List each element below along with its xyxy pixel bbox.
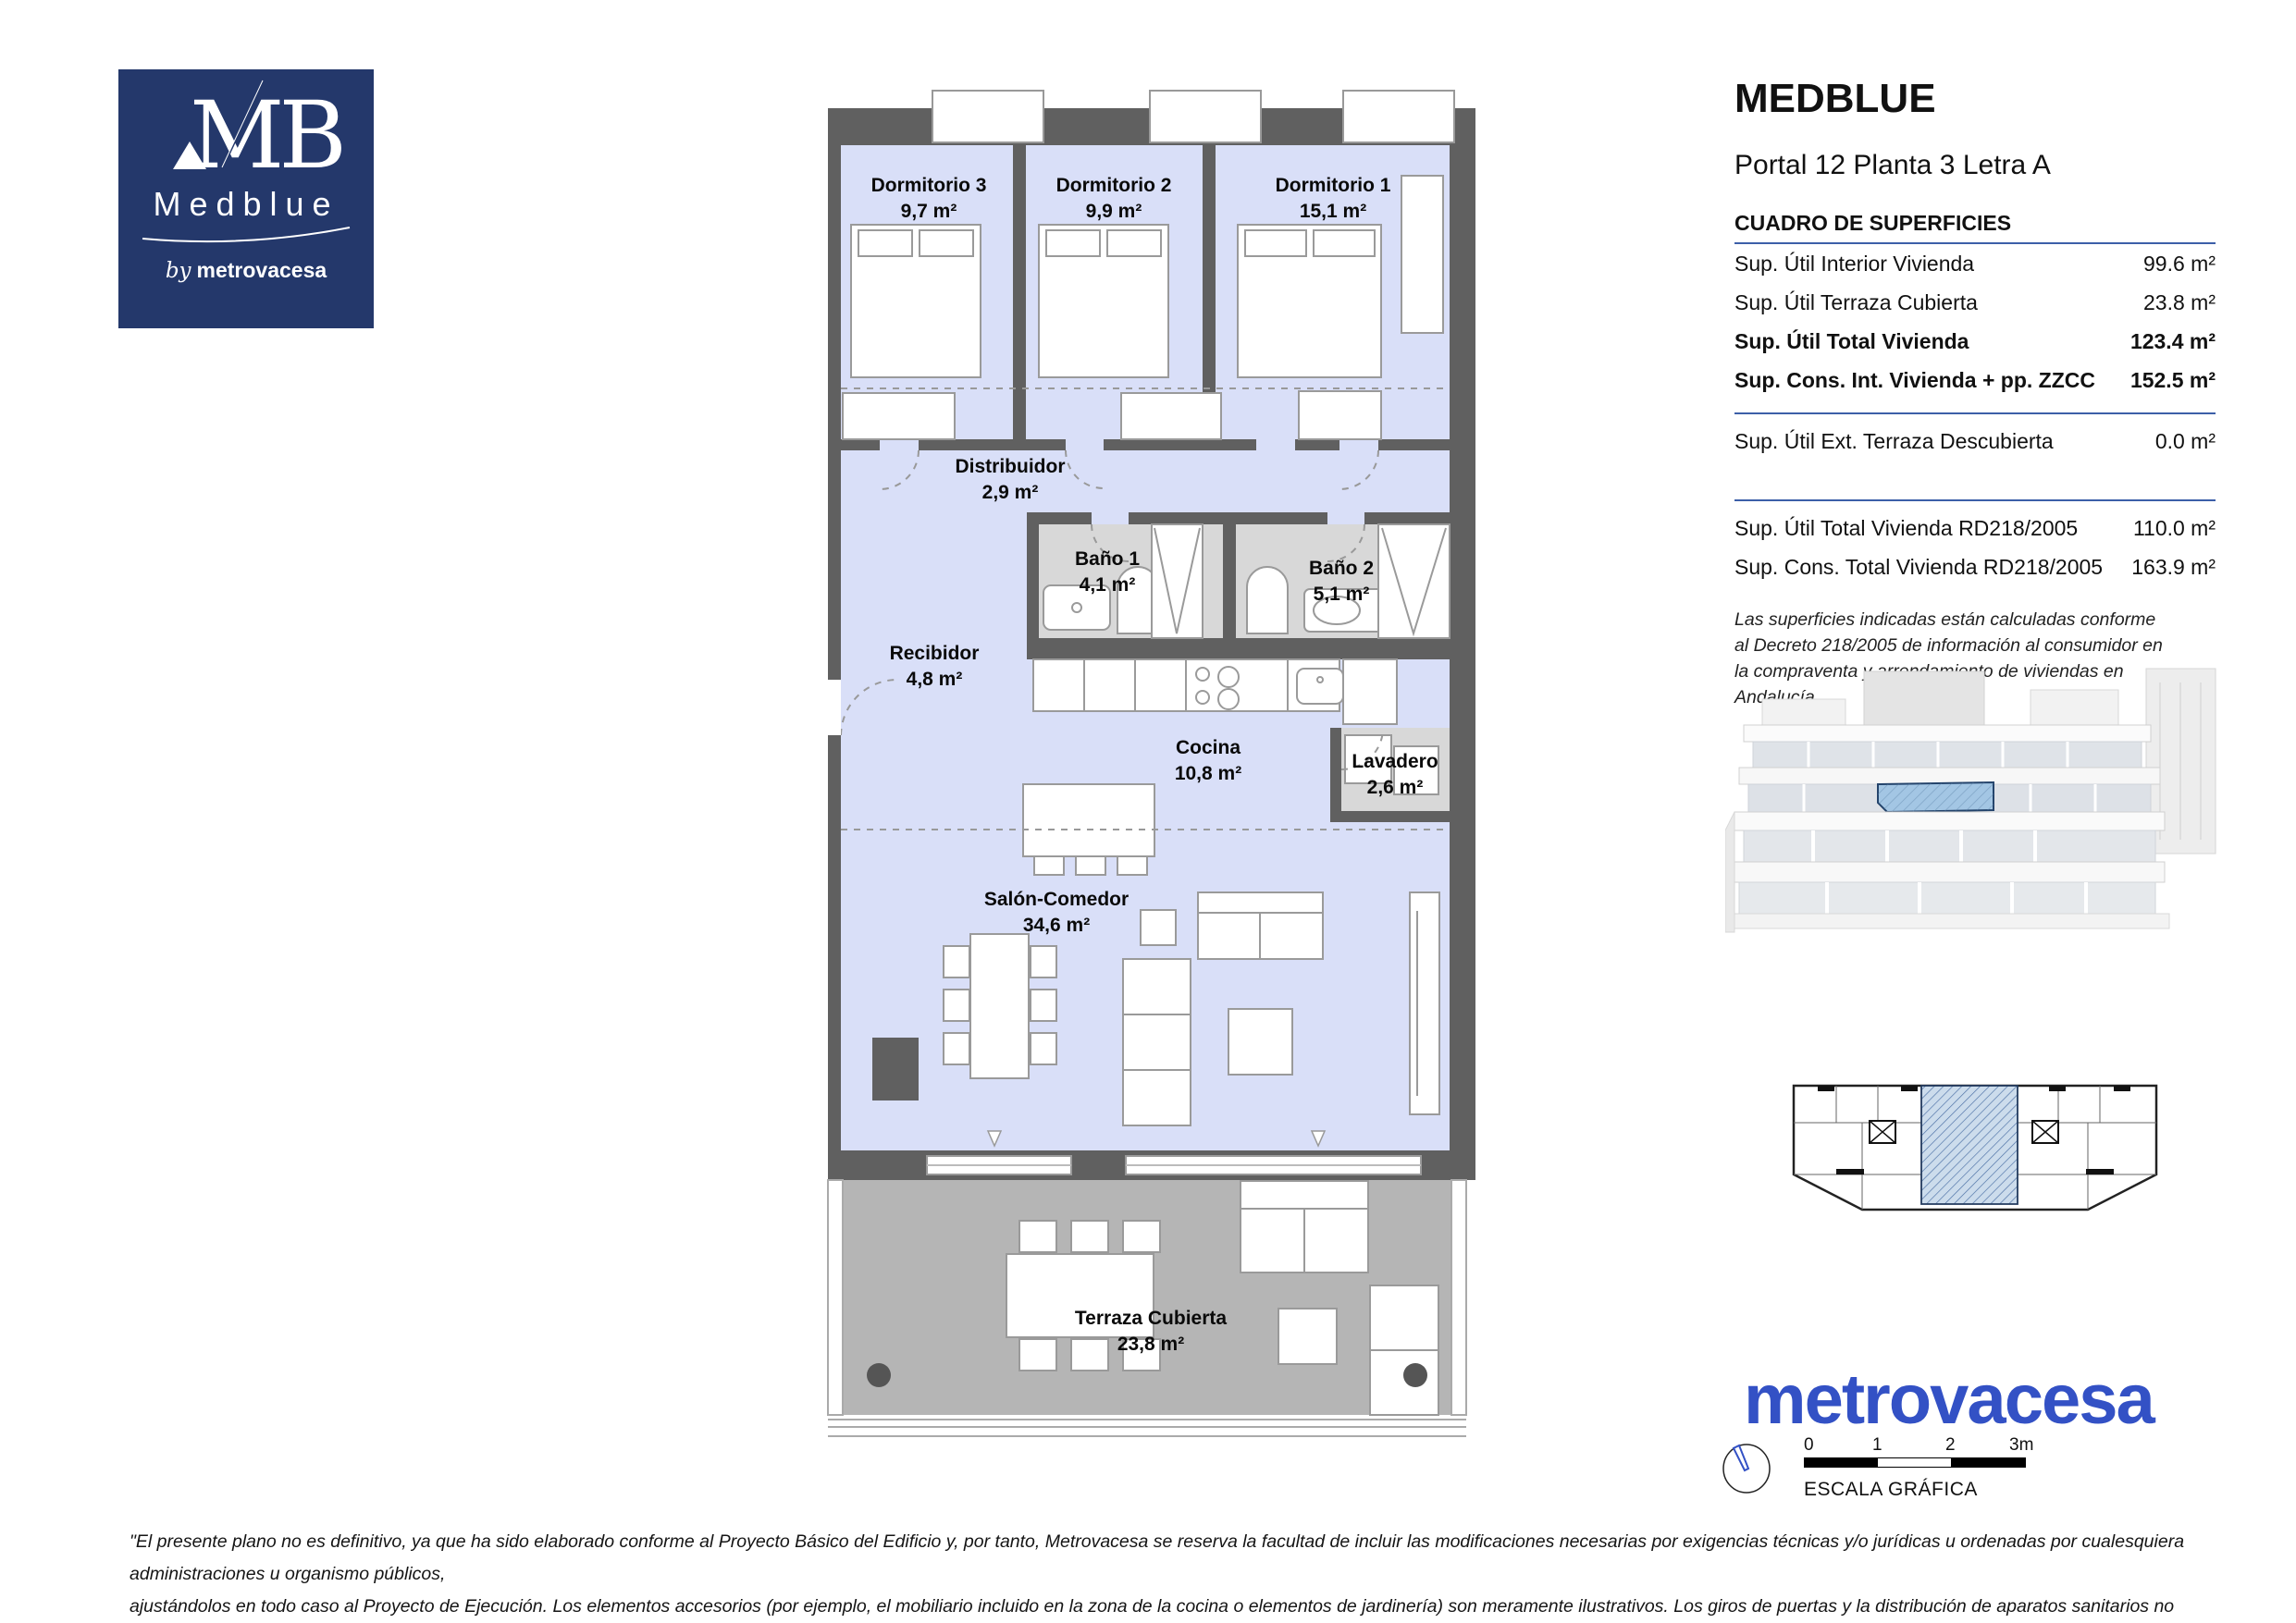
scale-graphic: 0 1 2 3m ESCALA GRÁFICA: [1804, 1435, 2035, 1501]
room-area: 4,1 m²: [1080, 574, 1136, 596]
scale-tick: 3m: [2009, 1435, 2033, 1456]
room-area: 23,8 m²: [1117, 1334, 1184, 1355]
sheet-title: MEDBLUE: [1734, 76, 1936, 122]
row-label: Sup. Útil Terraza Cubierta: [1734, 290, 1978, 315]
row-value: 152.5 m²: [2130, 368, 2216, 393]
divider: [1734, 499, 2216, 501]
table-row: Sup. Cons. Int. Vivienda + pp. ZZCC 152.…: [1734, 368, 2216, 407]
disclaimer-line: "El presente plano no es definitivo, ya …: [130, 1526, 2202, 1591]
room-label: Baño 2: [1309, 558, 1374, 579]
unit-identifier: Portal 12 Planta 3 Letra A: [1734, 150, 2051, 181]
scale-tick: 1: [1872, 1435, 1882, 1456]
room-area: 9,7 m²: [901, 201, 957, 222]
table-row: Sup. Útil Terraza Cubierta 23.8 m²: [1734, 290, 2216, 329]
terrace-column: [867, 1363, 891, 1387]
building-render: [1725, 664, 2220, 941]
room-area: 2,9 m²: [982, 482, 1039, 503]
metrovacesa-wordmark: metrovacesa: [1744, 1359, 2154, 1440]
logo-brand-text: Medblue: [118, 185, 374, 224]
table-row: Sup. Útil Ext. Terraza Descubierta 0.0 m…: [1734, 429, 2216, 468]
table-row: Sup. Cons. Total Vivienda RD218/2005 163…: [1734, 555, 2216, 594]
surfaces-table: Sup. Útil Interior Vivienda 99.6 m² Sup.…: [1734, 252, 2216, 710]
logo-company-word: metrovacesa: [197, 258, 327, 282]
table-row: Sup. Útil Interior Vivienda 99.6 m²: [1734, 252, 2216, 290]
terrace-railing: [828, 1420, 1466, 1436]
north-compass-icon: [1721, 1441, 1772, 1494]
row-label: Sup. Útil Total Vivienda RD218/2005: [1734, 516, 2078, 541]
scale-bar: [1804, 1457, 2026, 1468]
row-value: 99.6 m²: [2143, 252, 2216, 277]
room-area: 34,6 m²: [1023, 915, 1090, 936]
row-value: 163.9 m²: [2131, 555, 2216, 580]
room-label: Dormitorio 1: [1276, 175, 1391, 196]
room-area: 9,9 m²: [1086, 201, 1142, 222]
room-label: Lavadero: [1352, 751, 1438, 772]
top-windows: [932, 91, 1454, 142]
room-label: Terraza Cubierta: [1075, 1308, 1227, 1329]
surfaces-heading: CUADRO DE SUPERFICIES: [1734, 211, 2011, 236]
room-label: Distribuidor: [956, 456, 1066, 477]
entrance-opening: [828, 680, 841, 735]
divider: [1734, 242, 2216, 244]
room-label: Dormitorio 2: [1056, 175, 1172, 196]
row-label: Sup. Útil Ext. Terraza Descubierta: [1734, 429, 2054, 454]
row-label: Sup. Útil Total Vivienda: [1734, 329, 1969, 354]
disclaimer-line: ajustándolos en todo caso al Proyecto de…: [130, 1591, 2202, 1623]
medblue-logo: MB Medblue bymetrovacesa: [118, 69, 374, 328]
logo-byline: bymetrovacesa: [118, 258, 374, 283]
room-area: 15,1 m²: [1300, 201, 1366, 222]
table-row: Sup. Útil Total Vivienda 123.4 m²: [1734, 329, 2216, 368]
divider: [1734, 412, 2216, 414]
floorplan-sheet: MB Medblue bymetrovacesa: [0, 0, 2296, 1623]
room-area: 4,8 m²: [907, 669, 963, 690]
legal-disclaimer: "El presente plano no es definitivo, ya …: [130, 1526, 2202, 1623]
room-label: Salón-Comedor: [984, 889, 1129, 910]
logo-by-word: by: [166, 259, 191, 283]
room-area: 2,6 m²: [1367, 777, 1424, 798]
mb-monogram-icon: MB: [149, 69, 343, 178]
row-value: 0.0 m²: [2155, 429, 2216, 454]
scale-label: ESCALA GRÁFICA: [1804, 1479, 2035, 1501]
row-label: Sup. Útil Interior Vivienda: [1734, 252, 1974, 277]
room-label: Recibidor: [890, 643, 980, 664]
scale-tick: 0: [1804, 1435, 1814, 1456]
room-label: Cocina: [1176, 737, 1241, 758]
terrace-column: [1403, 1363, 1427, 1387]
row-value: 123.4 m²: [2130, 329, 2216, 354]
mb-monogram-text: MB: [190, 81, 341, 178]
room-area: 10,8 m²: [1175, 763, 1241, 784]
scale-ticks: 0 1 2 3m: [1804, 1435, 2035, 1456]
logo-swoosh-icon: [135, 224, 357, 244]
row-label: Sup. Cons. Int. Vivienda + pp. ZZCC: [1734, 368, 2095, 393]
table-row: Sup. Útil Total Vivienda RD218/2005 110.…: [1734, 516, 2216, 555]
room-area: 5,1 m²: [1314, 584, 1370, 605]
room-label: Baño 1: [1075, 548, 1140, 570]
row-label: Sup. Cons. Total Vivienda RD218/2005: [1734, 555, 2103, 580]
scale-tick: 2: [1945, 1435, 1956, 1456]
row-value: 23.8 m²: [2143, 290, 2216, 315]
floor-plan: Dormitorio 3 9,7 m² Dormitorio 2 9,9 m² …: [805, 88, 1499, 1443]
key-plan: [1781, 1065, 2169, 1246]
room-label: Dormitorio 3: [871, 175, 987, 196]
key-plan-highlighted-unit: [1921, 1086, 2018, 1204]
row-value: 110.0 m²: [2133, 516, 2216, 541]
